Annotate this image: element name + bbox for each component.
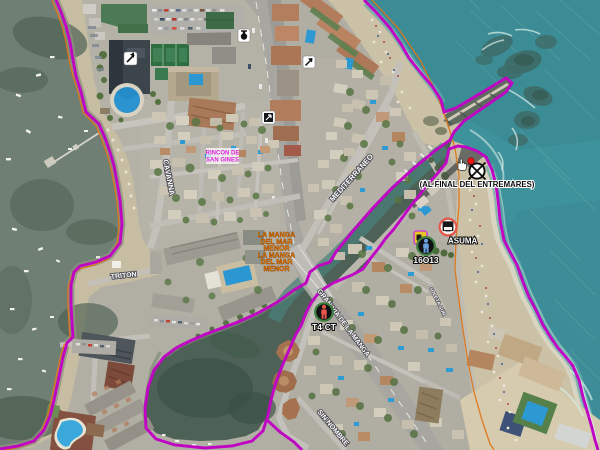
svg-text:ASUMA: ASUMA	[448, 237, 478, 246]
svg-text:16O13: 16O13	[413, 255, 438, 265]
svg-text:MENOR: MENOR	[263, 266, 289, 273]
svg-text:SAN GINES: SAN GINES	[206, 158, 239, 164]
svg-text:T4-CT: T4-CT	[312, 322, 337, 332]
svg-text:RINCON DE: RINCON DE	[206, 151, 240, 157]
svg-text:(AL FINAL DEL ENTREMARES): (AL FINAL DEL ENTREMARES)	[420, 180, 535, 189]
